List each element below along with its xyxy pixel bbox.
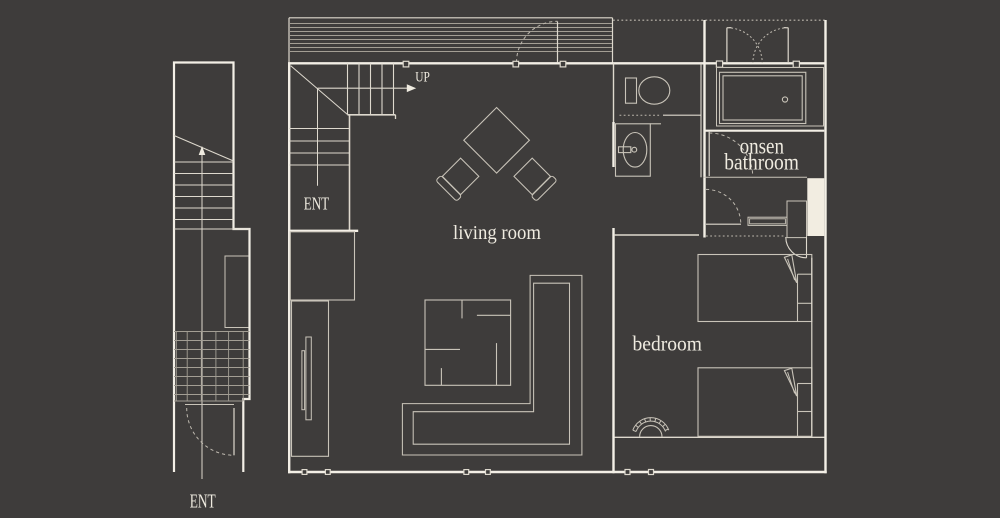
svg-text:UP: UP [415,70,430,86]
svg-text:ENT: ENT [190,491,216,513]
svg-text:bedroom: bedroom [633,332,703,356]
svg-text:living room: living room [453,222,541,244]
svg-text:bathroom: bathroom [724,150,799,175]
svg-text:ENT: ENT [304,193,330,213]
